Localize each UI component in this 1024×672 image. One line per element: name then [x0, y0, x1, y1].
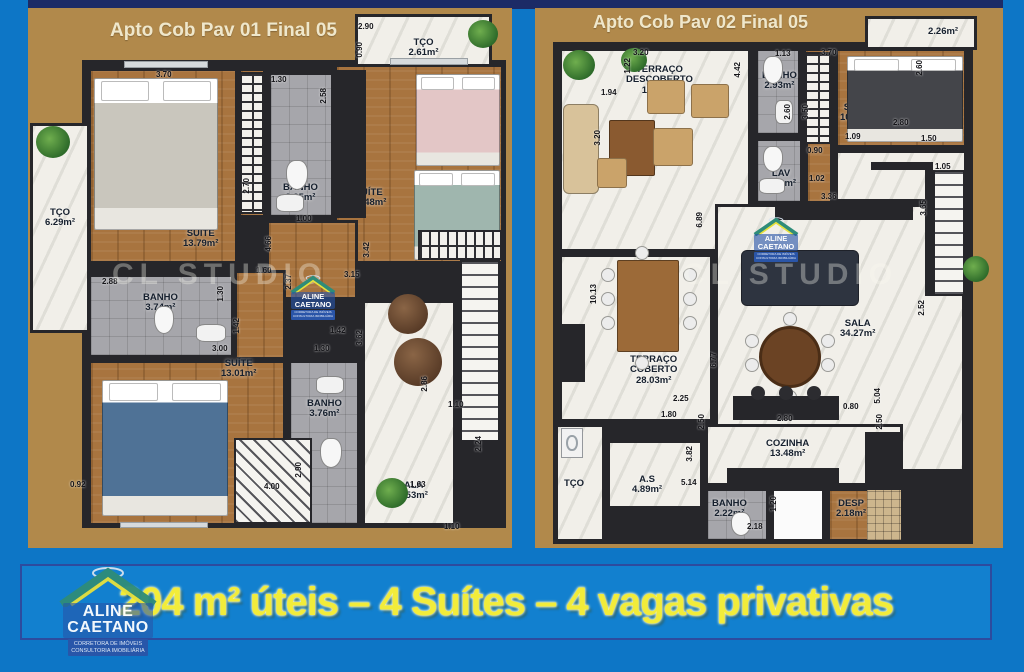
flyer-canvas: Apto Cob Pav 01 Final 05 CL STUDIO ALINE…: [0, 0, 1024, 672]
furniture-sofa: [563, 104, 599, 194]
floorplan-panel-1: Apto Cob Pav 01 Final 05 CL STUDIO ALINE…: [28, 8, 512, 548]
room-label: TÇO6.29m²: [33, 208, 87, 229]
logo-subtitle: CORRETORA DE IMÓVEISCONSULTORIA IMOBILIÁ…: [754, 252, 798, 262]
logo-name: ALINECAETANO: [754, 234, 799, 251]
logo-house-roof-icon: [290, 274, 336, 294]
dimension-label: 1.13: [775, 49, 791, 58]
dimension-label: 1.10: [444, 522, 460, 531]
dimension-label: 3.15: [344, 270, 360, 279]
dimension-label: 3.82: [685, 446, 694, 462]
furniture-pouf: [388, 294, 428, 334]
dimension-label: 3.65: [919, 200, 928, 216]
furniture-counter: [727, 468, 839, 488]
furniture-bed: [847, 56, 963, 142]
logo-house-roof-icon: [58, 565, 158, 607]
furniture-toilet: [763, 146, 783, 172]
dimension-label: 1.02: [809, 174, 825, 183]
furniture-chair: [653, 128, 693, 166]
furniture-chair: [691, 84, 729, 118]
room-label: BANHO3.76m²: [307, 399, 342, 420]
dimension-label: 2.88: [102, 277, 118, 286]
furniture-sink: [759, 178, 785, 194]
dimension-label: 1.00: [296, 214, 312, 223]
furniture-sink: [196, 324, 226, 342]
plan-title: Apto Cob Pav 01 Final 05: [110, 20, 337, 42]
furniture-toilet: [320, 438, 342, 468]
dimension-label: 6.77: [709, 352, 718, 368]
furniture-pouf: [394, 338, 442, 386]
room-label: SUÍTE13.01m²: [221, 359, 256, 380]
furniture-chair-w: [601, 316, 615, 330]
dimension-label: 2.90: [294, 462, 303, 478]
dimension-label: 4.42: [733, 62, 742, 78]
dimension-label: 3.50: [801, 104, 810, 120]
furniture-hatch-h: [418, 230, 502, 260]
floorplan-panel-2: Apto Cob Pav 02 Final 05 CL STUDIO ALINE…: [535, 8, 1003, 548]
furniture-chair-w: [601, 292, 615, 306]
furniture-wall: [871, 162, 931, 170]
furniture-toilet: [286, 160, 308, 190]
furniture-plant: [376, 478, 408, 508]
dimension-label: 1.60: [256, 266, 272, 275]
room-area: 2.26m²: [865, 16, 977, 50]
dimension-label: 6.89: [695, 212, 704, 228]
plan-title: Apto Cob Pav 02 Final 05: [593, 12, 808, 33]
dimension-label: 2.80: [777, 414, 793, 423]
aline-caetano-badge: ALINECAETANO CORRETORA DE IMÓVEISCONSULT…: [753, 216, 799, 262]
furniture-window: [120, 522, 208, 528]
dimension-label: 3.20: [593, 130, 602, 146]
furniture-chair-w: [745, 334, 759, 348]
furniture-sink: [276, 194, 304, 212]
room-label: COZINHA13.48m²: [766, 439, 809, 460]
logo-name: ALINECAETANO: [63, 603, 152, 638]
dimension-label: 3.20: [633, 48, 649, 57]
room-label: TÇO2.61m²: [376, 38, 472, 59]
dimension-label: 3.42: [362, 242, 371, 258]
dimension-label: 2.24: [474, 436, 483, 452]
logo-house-roof-icon: [753, 216, 799, 236]
furniture-plant: [36, 126, 70, 158]
furniture-table: [617, 260, 679, 352]
room-label: SUÍTE13.79m²: [183, 229, 218, 250]
room-label: TÇO: [564, 479, 584, 489]
dimension-label: 0.92: [70, 480, 86, 489]
dimension-label: 3.62: [355, 330, 364, 346]
furniture-chair-w: [683, 268, 697, 282]
furniture-bed: [102, 380, 228, 516]
furniture-chair-w: [683, 316, 697, 330]
dimension-label: 1.63: [410, 480, 426, 489]
dimension-label: 2.52: [917, 300, 926, 316]
furniture-stairs-v: [460, 260, 500, 442]
room-label: SALA34.27m²: [840, 319, 875, 340]
furniture-chair: [597, 158, 627, 188]
furniture-chair-w: [635, 356, 649, 370]
dimension-label: 2.60: [783, 104, 792, 120]
furniture-counter: [336, 70, 366, 218]
furniture-stool: [779, 386, 793, 400]
room-label: 2.26m²: [928, 27, 958, 37]
floorplan-1: Apto Cob Pav 01 Final 05 CL STUDIO ALINE…: [28, 8, 512, 548]
dimension-label: 2.80: [893, 118, 909, 127]
dimension-label: 1.05: [935, 162, 951, 171]
dimension-label: 2.60: [915, 60, 924, 76]
banner-text: 204 m² úteis – 4 Suítes – 4 vagas privat…: [119, 580, 893, 625]
logo-name: ALINECAETANO: [291, 292, 336, 309]
dimension-label: 0.90: [355, 42, 364, 58]
furniture-counter: [865, 432, 903, 486]
aline-caetano-logo: ALINECAETANO CORRETORA DE IMÓVEISCONSULT…: [58, 565, 158, 656]
furniture-round-table: [759, 326, 821, 388]
dimension-label: 1.80: [661, 410, 677, 419]
furniture-shelf: [867, 490, 901, 540]
furniture-window: [124, 61, 208, 68]
furniture-hatch-v: [805, 52, 831, 144]
dimension-label: 1.22: [623, 58, 632, 74]
dimension-label: 1.30: [314, 344, 330, 353]
dimension-label: 2.70: [242, 178, 251, 194]
furniture-counter: [559, 324, 585, 382]
dimension-label: 1.42: [330, 326, 346, 335]
dimension-label: 4.66: [264, 236, 273, 252]
dimension-label: 1.94: [601, 88, 617, 97]
dimension-label: 1.42: [232, 318, 241, 334]
furniture-toilet: [763, 56, 783, 84]
banner: 204 m² úteis – 4 Suítes – 4 vagas privat…: [20, 564, 992, 640]
logo-subtitle: CORRETORA DE IMÓVEISCONSULTORIA IMOBILIÁ…: [291, 310, 335, 320]
dimension-label: 3.36: [821, 192, 837, 201]
furniture-hatch-d: [234, 438, 312, 524]
dimension-label: 1.20: [769, 496, 778, 512]
furniture-bed: [94, 78, 218, 230]
furniture-toilet: [154, 306, 174, 334]
room-label: DESP2.18m²: [836, 499, 866, 520]
furniture-sink: [316, 376, 344, 394]
dimension-label: 2.90: [358, 22, 374, 31]
furniture-chair-w: [683, 292, 697, 306]
dimension-label: 5.04: [873, 388, 882, 404]
furniture-stairs-v: [933, 170, 965, 296]
furniture-stool: [807, 386, 821, 400]
dimension-label: 3.70: [821, 48, 837, 57]
furniture-chair: [647, 80, 685, 114]
furniture-wall: [925, 162, 933, 296]
floorplan-2: Apto Cob Pav 02 Final 05 CL STUDIO ALINE…: [535, 8, 1003, 548]
room-area: [771, 488, 825, 542]
furniture-plant: [468, 20, 498, 48]
dimension-label: 3.00: [212, 344, 228, 353]
room-area: [234, 270, 286, 360]
furniture-bed: [416, 74, 500, 166]
furniture-chair-w: [635, 246, 649, 260]
dimension-label: 4.00: [264, 482, 280, 491]
dimension-label: 0.80: [843, 402, 859, 411]
dimension-label: 2.50: [875, 414, 884, 430]
furniture-chair-w: [783, 312, 797, 326]
furniture-window: [390, 58, 468, 65]
logo-subtitle: CORRETORA DE IMÓVEISCONSULTORIA IMOBILIÁ…: [68, 639, 147, 657]
furniture-chair-w: [745, 358, 759, 372]
dimension-label: 2.86: [420, 376, 429, 392]
dimension-label: 3.70: [156, 70, 172, 79]
dimension-label: 1.30: [271, 75, 287, 84]
furniture-stool: [751, 386, 765, 400]
dimension-label: 5.14: [681, 478, 697, 487]
dimension-label: 1.30: [216, 286, 225, 302]
aline-caetano-badge: ALINECAETANO CORRETORA DE IMÓVEISCONSULT…: [290, 274, 336, 320]
dimension-label: 2.25: [673, 394, 689, 403]
furniture-plant: [563, 50, 595, 80]
dimension-label: 0.90: [807, 146, 823, 155]
dimension-label: 1.09: [845, 132, 861, 141]
dimension-label: 2.58: [319, 88, 328, 104]
furniture-chair-w: [601, 268, 615, 282]
room-label: A.S4.89m²: [632, 475, 662, 496]
dimension-label: 2.18: [747, 522, 763, 531]
dimension-label: 1.50: [921, 134, 937, 143]
furniture-washer: [561, 428, 583, 458]
dimension-label: 10.13: [589, 284, 598, 304]
furniture-chair-w: [821, 358, 835, 372]
furniture-counter: [609, 506, 701, 540]
dimension-label: 2.50: [697, 414, 706, 430]
furniture-chair-w: [821, 334, 835, 348]
dimension-label: 1.10: [448, 400, 464, 409]
furniture-plant: [963, 256, 989, 282]
